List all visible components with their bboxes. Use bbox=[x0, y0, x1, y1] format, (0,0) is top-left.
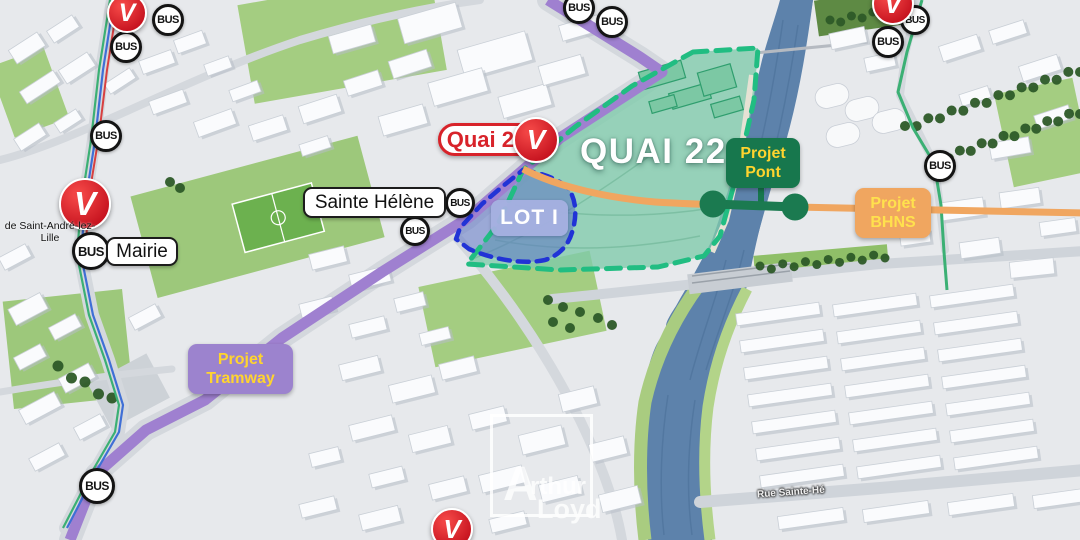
projet-bhns-line1: Projet bbox=[859, 194, 927, 213]
bus-stop-icon[interactable]: BUS bbox=[924, 150, 956, 182]
bus-stop-icon[interactable]: BUS bbox=[90, 120, 122, 152]
bus-stop-icon[interactable]: BUS bbox=[79, 468, 115, 504]
projet-bhns-line2: BHNS bbox=[859, 213, 927, 232]
projet-tramway-badge[interactable]: Projet Tramway bbox=[188, 344, 293, 394]
sainte-helene-label[interactable]: Sainte Hélène bbox=[303, 187, 446, 218]
projet-tramway-line2: Tramway bbox=[192, 369, 289, 388]
projet-bhns-badge[interactable]: Projet BHNS bbox=[855, 188, 931, 238]
mairie-label[interactable]: Mairie bbox=[106, 237, 178, 266]
saint-andre-line2: Lille bbox=[41, 232, 60, 244]
saint-andre-line1: de Saint-André-lez- bbox=[5, 220, 95, 232]
projet-pont-badge[interactable]: Projet Pont bbox=[726, 138, 800, 188]
vlille-icon[interactable]: V bbox=[513, 117, 559, 163]
bus-stop-icon[interactable]: BUS bbox=[445, 188, 475, 218]
bus-stop-icon[interactable]: BUS bbox=[596, 6, 628, 38]
saint-andre-label: de Saint-André-lez- Lille bbox=[0, 220, 100, 244]
projet-tramway-line1: Projet bbox=[192, 350, 289, 369]
projet-pont-line2: Pont bbox=[730, 163, 796, 182]
bus-stop-icon[interactable]: BUS bbox=[152, 4, 184, 36]
arthur-loyd-watermark: A rthur Loyd bbox=[490, 414, 593, 517]
bus-stop-icon[interactable]: BUS bbox=[110, 31, 142, 63]
map-stage: BUSBUSBUSBUSBUSBUSBUSBUSBUSBUSBUSBUSVVVV… bbox=[0, 0, 1080, 540]
projet-pont-line1: Projet bbox=[730, 144, 796, 163]
watermark-loyd: Loyd bbox=[537, 496, 602, 523]
zone-title: QUAI 22 bbox=[580, 132, 727, 172]
bus-stop-icon[interactable]: BUS bbox=[872, 26, 904, 58]
bus-stop-icon[interactable]: BUS bbox=[400, 216, 430, 246]
lot1-badge[interactable]: LOT I bbox=[491, 200, 568, 236]
